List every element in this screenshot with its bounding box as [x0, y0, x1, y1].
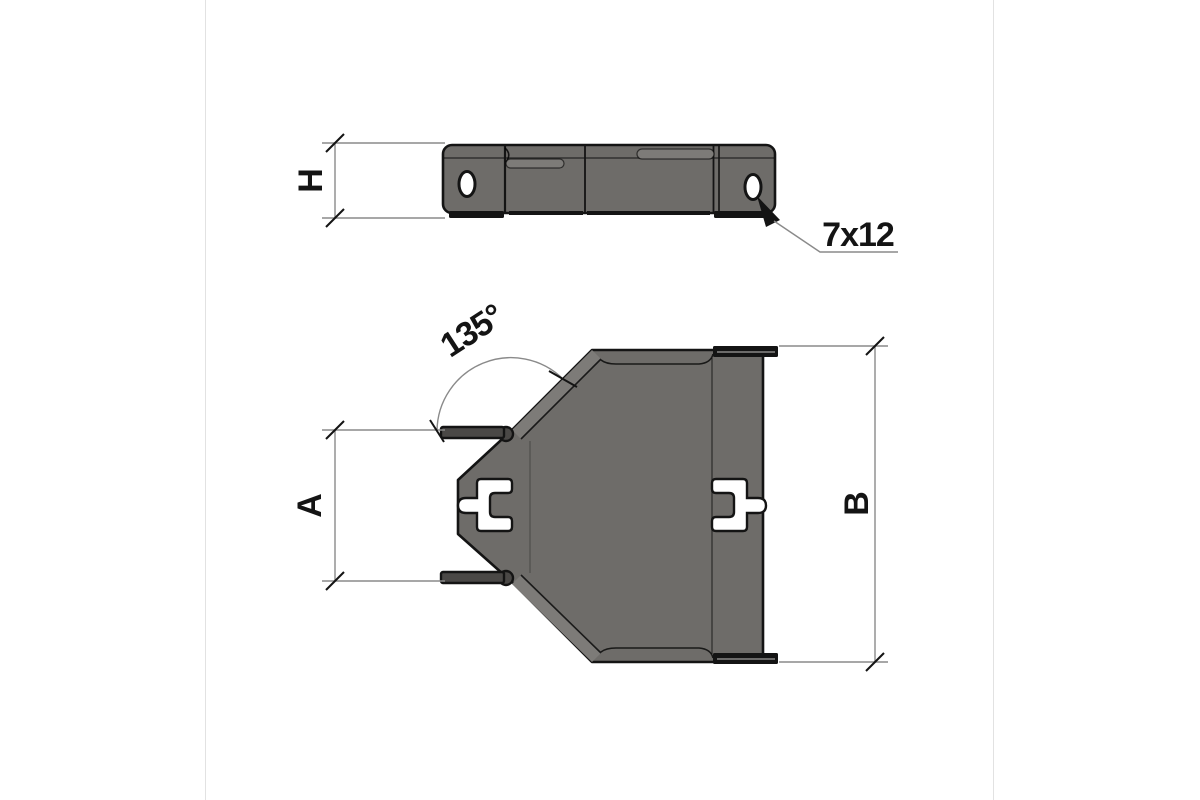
left-opening-flange: [441, 572, 504, 583]
side-view-foot: [509, 211, 583, 215]
dimension-h: H: [292, 134, 445, 227]
side-view-body: [443, 145, 775, 213]
plan-view: [441, 346, 778, 664]
side-view-foot: [587, 211, 710, 215]
side-view-foot: [449, 211, 504, 218]
dimension-b: B: [779, 337, 888, 671]
dimension-h-label: H: [292, 169, 330, 193]
slot-size-callout: 7x12: [757, 196, 898, 254]
side-view: [443, 145, 775, 218]
technical-drawing: H 7x12: [0, 0, 1200, 800]
angle-label: 135°: [434, 297, 511, 365]
left-opening-flange: [441, 427, 504, 438]
oval-slot: [459, 172, 475, 197]
drawing-canvas: H 7x12: [0, 0, 1200, 800]
oval-slot: [745, 175, 761, 200]
slot-size-label: 7x12: [822, 216, 894, 254]
side-view-foot: [714, 211, 769, 218]
dimension-a: A: [291, 421, 445, 590]
side-view-ridge: [637, 149, 714, 159]
dimension-b-label: B: [838, 492, 876, 516]
side-view-ridge: [506, 159, 564, 168]
dimension-a-label: A: [291, 494, 329, 518]
plan-view-body: [458, 350, 763, 662]
